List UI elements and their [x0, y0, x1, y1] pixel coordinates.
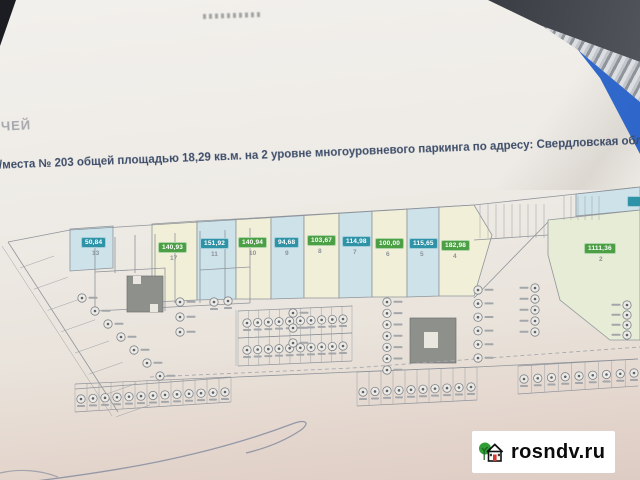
unit-area-badge: 114,98: [342, 236, 371, 247]
unit-number: 10: [249, 250, 256, 257]
unit-number: 13: [92, 250, 99, 257]
unit-number: 7: [353, 249, 357, 256]
unit-area-badge: 1111,36: [584, 243, 616, 254]
unit-number: 17: [170, 255, 177, 262]
unit-11-room: [197, 219, 236, 300]
unit-area-badge: 151,92: [200, 238, 229, 249]
unit-number: 9: [285, 250, 289, 257]
stair-core-left: [127, 276, 163, 312]
unit-9-room: [271, 215, 304, 299]
unit-area-badge: 115,65: [409, 238, 438, 249]
unit-area-badge: 182,98: [441, 240, 470, 251]
unit-number: 5: [420, 251, 424, 258]
unit-number: 4: [453, 253, 457, 260]
clipped-unit-badge: [627, 196, 640, 207]
unit-number: 11: [211, 251, 218, 258]
stair-core-center: [410, 318, 456, 363]
watermark-text: rosndv.ru: [511, 441, 605, 464]
unit-area-badge: 94,68: [274, 237, 299, 248]
partial-word-top-left: ЧЕЙ: [1, 117, 32, 134]
watermark: rosndv.ru: [472, 431, 615, 473]
unit-area-badge: 103,67: [307, 235, 336, 246]
faint-top-text: [203, 12, 263, 19]
unit-area-badge: 140,94: [238, 237, 267, 248]
unit-10-room: [236, 217, 271, 299]
unit-8-room: [304, 213, 339, 298]
house-tree-logo-icon: [478, 439, 505, 466]
unit-number: 2: [599, 256, 603, 263]
unit-13-room: [70, 226, 113, 271]
unit-area-badge: 50,84: [81, 237, 106, 248]
photo-background: ЧЕЙ о/места № 203 общей площадью 18,29 к…: [0, 0, 640, 480]
top-left-shadow: [0, 0, 60, 60]
unit-number: 6: [386, 251, 390, 258]
unit-number: 8: [318, 248, 322, 255]
unit-area-badge: 140,93: [158, 242, 187, 253]
unit-area-badge: 100,00: [375, 238, 404, 249]
